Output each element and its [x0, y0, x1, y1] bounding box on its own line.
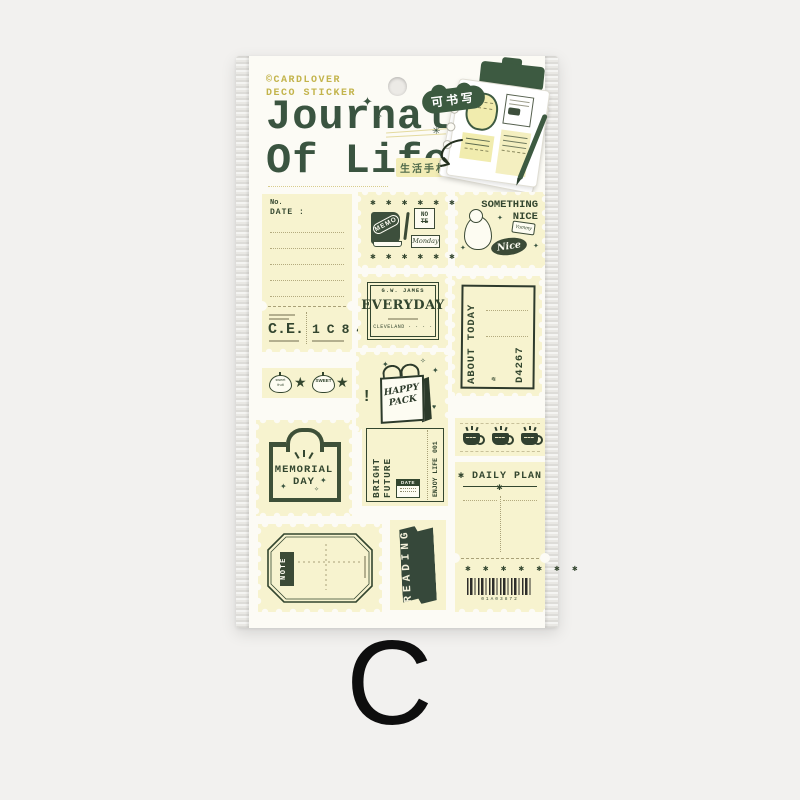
pad-line1: NO	[415, 211, 434, 218]
ticket-divider	[306, 312, 307, 344]
fruit-icon: SWEET	[312, 375, 335, 393]
steam-mark	[533, 427, 536, 431]
fruit-icon: sweet fruit	[269, 375, 292, 393]
steam-mark	[504, 427, 507, 431]
tear-notch	[347, 301, 357, 311]
ticket-code: C.E.	[268, 321, 304, 338]
about-no-mark: №	[490, 368, 497, 382]
writing-line	[270, 296, 344, 297]
everyday-top-text: G.W. JAMES	[358, 287, 448, 294]
variant-letter: C	[346, 618, 433, 748]
something-text: SOMETHING NICE	[481, 199, 538, 223]
star-icon: ★	[294, 374, 307, 391]
sticker-note-ticket: No. DATE : C.E. 1C84	[262, 194, 352, 352]
sparkle-icon: ✦	[280, 482, 287, 491]
steam-mark	[529, 426, 531, 430]
nice-line2: NICE	[481, 211, 538, 223]
sticker-coffee-strip	[455, 418, 545, 456]
writing-line	[463, 500, 497, 501]
everyday-main-text: EVERYDAY	[358, 298, 448, 313]
fruit1-line1: sweet	[276, 378, 286, 382]
stars-row: ✱ ✱ ✱ ✱ ✱ ✱ ✱	[465, 565, 583, 573]
arrow-doodle-icon	[432, 136, 474, 178]
product-photo: ©CARDLOVER DECO STICKER Journal Of Life …	[0, 0, 800, 800]
sticker-fruit-star-strip: sweet fruit ★ SWEET ★	[262, 368, 352, 398]
micro-text-bar	[388, 318, 418, 320]
coffee-cup-icon	[492, 433, 509, 445]
writing-line	[270, 232, 344, 233]
barcode-number: 01A03872	[455, 597, 545, 602]
tear-notch	[450, 553, 460, 563]
reading-banner-shape: READING	[399, 525, 437, 605]
note-ribbon: NOTE	[280, 552, 294, 586]
tear-notch	[540, 553, 550, 563]
sparkle-icon: ✦	[533, 242, 539, 250]
ray-mark	[303, 450, 305, 457]
memorial-line1: MEMORIAL	[256, 464, 352, 476]
sticker-memo-stamp: ✱ ✱ ✱ ✱ ✱ ✱ ✱ ✱ ✱ ✱ ✱ ✱ ✱ ✱ MEMO NO TE M…	[358, 192, 448, 268]
monday-label: Monday	[411, 235, 440, 248]
nice-oval-badge: Nice	[490, 236, 528, 258]
brand-line1: ©CARDLOVER	[266, 74, 356, 87]
sparkle-icon: ✧	[420, 357, 426, 365]
pad-line2: TE	[415, 218, 434, 225]
steam-mark	[494, 427, 497, 431]
ghost-character-icon	[464, 216, 492, 250]
memorial-line2: DAY	[256, 476, 352, 488]
steam-mark	[471, 426, 473, 430]
tear-notch	[257, 301, 267, 311]
shopping-bag-icon: HAPPY PACK	[374, 362, 438, 426]
sticker-about-today-stamp: ABOUT TODAY № D4267	[452, 276, 542, 396]
sticker-bright-future: BRIGHT FUTURE 001 ENJOY LIFE DATE	[362, 424, 448, 506]
pencil-icon	[403, 212, 409, 240]
sparkle-icon: ✦	[460, 244, 466, 252]
decorative-line	[460, 451, 540, 452]
no-label: No.	[270, 199, 283, 207]
mini-note	[502, 94, 534, 128]
bright-divider	[427, 430, 428, 500]
writing-line	[270, 280, 344, 281]
sticker-daily-plan-ticket: ✱ DAILY PLAN ✱ ✱ ✱ ✱ ✱ ✱ ✱ ✱ 01A03872	[455, 462, 545, 612]
star-icon: ★	[336, 374, 349, 391]
decorative-line	[460, 423, 540, 424]
tear-line	[268, 306, 346, 307]
sparkle-icon: ✦	[362, 94, 373, 110]
date-label: DATE	[397, 480, 419, 486]
bright-right-top: 001	[432, 433, 439, 453]
sparkle-icon: ✦	[382, 360, 389, 369]
sticker-something-nice-stamp: SOMETHING NICE Yummy Nice ✦ ✦ ✦	[455, 192, 545, 268]
spiral-ring	[446, 122, 456, 132]
steam-mark	[523, 427, 526, 431]
barcode	[467, 578, 533, 595]
writing-line	[270, 264, 344, 265]
postcard-divider	[500, 496, 501, 552]
steam-mark	[465, 427, 468, 431]
sticker-reading-banner: READING	[390, 520, 446, 610]
sticker-happy-pack-stamp: ! HAPPY PACK ✦ ✧ ✦ ♥	[356, 352, 448, 432]
everyday-bottom-text: CLEVELAND · · · ·	[358, 324, 448, 330]
sparkle-icon: ✧	[376, 112, 383, 121]
daily-plan-title-text: DAILY PLAN	[472, 471, 542, 482]
date-calendar-icon: DATE	[396, 479, 420, 498]
note-ribbon-text: NOTE	[280, 552, 294, 586]
package-illustration	[436, 60, 554, 192]
exclamation-mark: !	[364, 388, 369, 406]
bottle-icon: Yummy	[511, 220, 535, 235]
memorial-arch	[286, 428, 324, 452]
nice-line1: SOMETHING	[481, 199, 538, 211]
memorial-frame-shoulder	[269, 442, 286, 447]
bright-side-text: BRIGHT FUTURE	[371, 432, 393, 498]
coffee-cup-icon	[521, 433, 538, 445]
daily-plan-title: ✱ DAILY PLAN ✱	[455, 470, 545, 494]
sticker-memorial-day-stamp: MEMORIAL DAY ✦ ✦ ✧	[256, 420, 352, 516]
sticker-package: ©CARDLOVER DECO STICKER Journal Of Life …	[236, 56, 558, 628]
micro-text-bar	[312, 340, 344, 342]
about-code: D4267	[514, 331, 526, 383]
memo-book-icon: MEMO	[371, 212, 400, 244]
tear-line	[461, 558, 539, 559]
micro-text-bar	[364, 556, 366, 578]
sticker-note-octagon-stamp: NOTE	[258, 524, 382, 612]
about-title: ABOUT TODAY	[466, 292, 478, 384]
writing-line	[503, 500, 537, 501]
micro-text-bar	[269, 340, 299, 342]
asterisk-icon: ✱	[458, 471, 465, 482]
date-label: DATE :	[270, 208, 305, 217]
steam-mark	[500, 426, 502, 430]
note-pad-icon: NO TE	[414, 208, 435, 229]
fruit2-label: SWEET	[313, 378, 334, 383]
coffee-cup-icon	[463, 433, 480, 445]
decorative-dotted-underline	[268, 186, 388, 187]
writing-line	[486, 310, 528, 311]
fruit1-line2: fruit	[277, 383, 283, 387]
reading-banner-text: READING	[399, 525, 437, 605]
plastic-sleeve-left-edge	[236, 56, 249, 628]
sparkle-icon: ✧	[314, 486, 319, 493]
steam-mark	[475, 427, 478, 431]
sparkle-icon: ✦	[320, 476, 327, 485]
micro-text-bar	[269, 318, 289, 320]
memorial-frame-shoulder	[322, 442, 339, 447]
asterisk-icon: ✱	[496, 483, 503, 494]
memo-book-text: MEMO	[371, 213, 401, 236]
sticker-everyday-stamp: G.W. JAMES EVERYDAY CLEVELAND · · · ·	[358, 274, 448, 348]
heart-icon: ♥	[432, 404, 436, 411]
sparkle-icon: ✦	[432, 366, 439, 375]
bright-right-bottom: ENJOY LIFE	[432, 455, 439, 497]
title-underline	[463, 486, 537, 487]
micro-text-bar	[269, 314, 295, 316]
writing-line	[270, 248, 344, 249]
sparkle-icon: ✦	[497, 214, 503, 222]
